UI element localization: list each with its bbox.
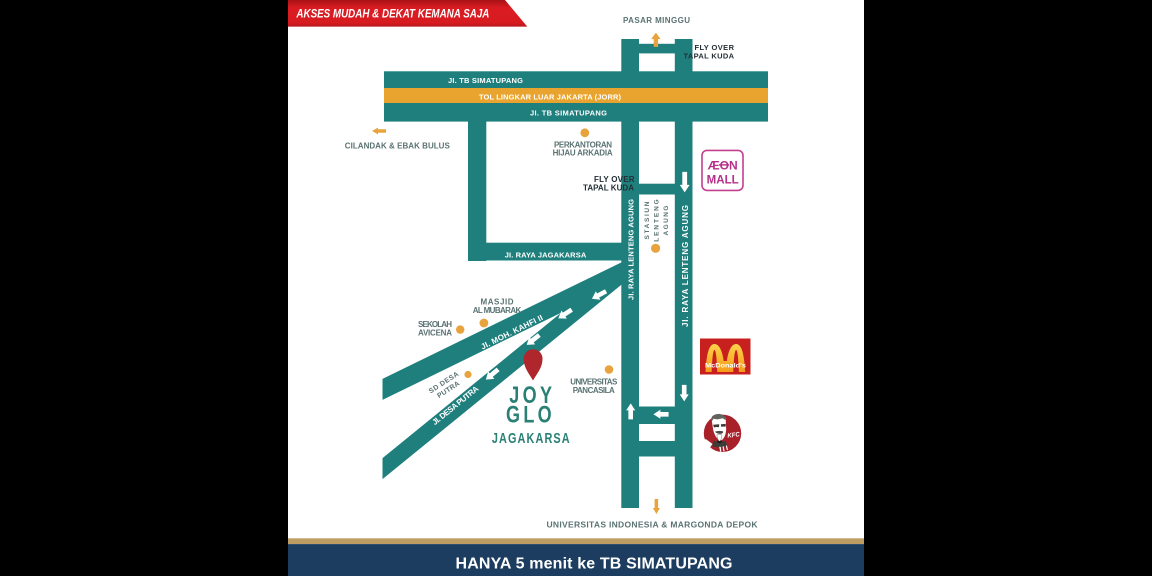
svg-text:STASIUN: STASIUN (644, 201, 651, 239)
svg-text:PASAR MINGGU: PASAR MINGGU (623, 16, 690, 25)
svg-text:TOL LINGKAR LUAR JAKARTA (JORR: TOL LINGKAR LUAR JAKARTA (JORR) (479, 93, 622, 102)
svg-text:JI. TB SIMATUPANG: JI. TB SIMATUPANG (530, 109, 607, 118)
svg-text:AKSES MUDAH & DEKAT KEMANA SAJ: AKSES MUDAH & DEKAT KEMANA SAJA (296, 8, 490, 20)
svg-text:TAPAL KUDA: TAPAL KUDA (583, 184, 634, 193)
svg-text:JAGAKARSA: JAGAKARSA (492, 430, 571, 447)
svg-text:ÆON: ÆON (708, 161, 738, 173)
svg-text:AL MUBARAK: AL MUBARAK (473, 306, 522, 315)
svg-text:GLO: GLO (506, 402, 555, 428)
svg-text:CILANDAK & EBAK BULUS: CILANDAK & EBAK BULUS (345, 142, 451, 151)
svg-text:AGUNG: AGUNG (663, 206, 670, 236)
svg-text:JI. TB SIMATUPANG: JI. TB SIMATUPANG (448, 76, 523, 85)
svg-text:PANCASILA: PANCASILA (573, 386, 615, 395)
svg-text:JI. RAYA LENTENG AGUNG: JI. RAYA LENTENG AGUNG (681, 205, 690, 327)
svg-text:UNIVERSITAS INDONESIA & MARGON: UNIVERSITAS INDONESIA & MARGONDA DEPOK (547, 519, 759, 529)
svg-text:McDonald's: McDonald's (705, 363, 746, 370)
svg-text:MALL: MALL (707, 175, 739, 187)
svg-text:JI. RAYA LENTENG AGUNG: JI. RAYA LENTENG AGUNG (627, 199, 636, 300)
svg-text:HIJAU ARKADIA: HIJAU ARKADIA (553, 148, 613, 157)
svg-text:AVICENA: AVICENA (418, 329, 452, 338)
svg-text:JI. RAYA JAGAKARSA: JI. RAYA JAGAKARSA (505, 251, 587, 260)
svg-text:HANYA 5 menit ke TB SIMATUPANG: HANYA 5 menit ke TB SIMATUPANG (456, 556, 733, 573)
svg-text:TAPAL KUDA: TAPAL KUDA (684, 51, 735, 60)
